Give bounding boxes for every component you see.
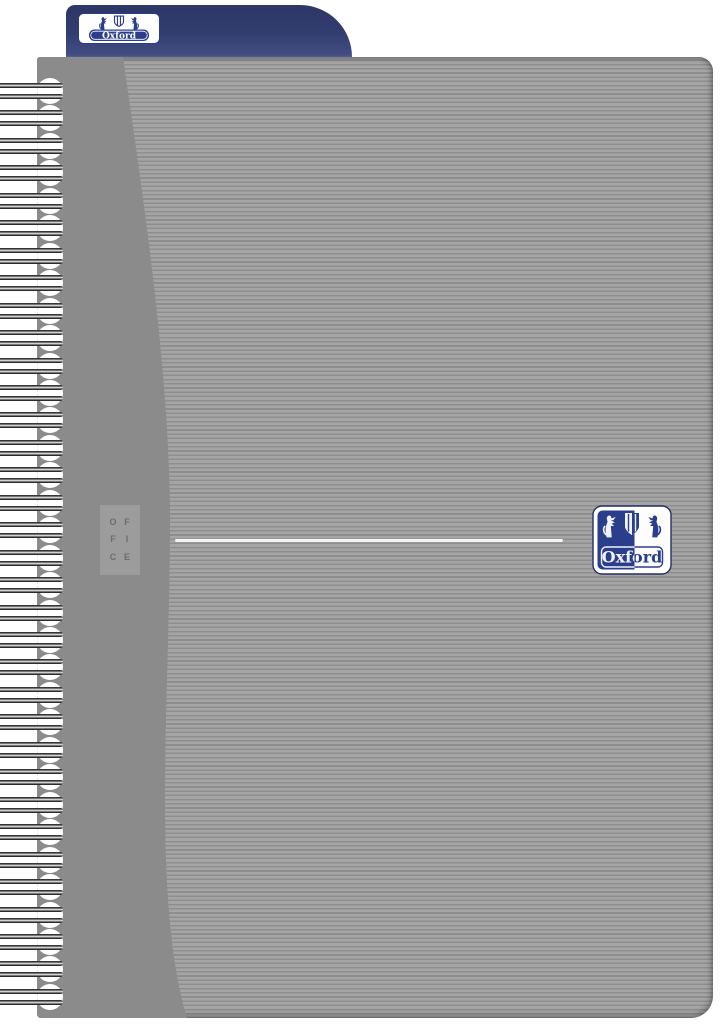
- oxford-logo-cover: Oxford Oxford: [592, 505, 672, 575]
- binding-hole: [37, 682, 63, 708]
- binding-hole: [37, 929, 63, 955]
- binding-hole: [37, 764, 63, 790]
- spiral-ring: [0, 654, 64, 680]
- wire-segment: [0, 808, 63, 813]
- binding-hole: [37, 490, 63, 516]
- spiral-ring: [0, 298, 64, 324]
- binding-hole: [37, 243, 63, 269]
- notebook-product-photo: Oxford O F F I C E: [0, 0, 721, 1024]
- wire-segment: [0, 83, 63, 88]
- spiral-ring: [0, 764, 64, 790]
- wire-segment: [0, 248, 63, 253]
- spiral-ring: [0, 407, 64, 433]
- spiral-ring: [0, 490, 64, 516]
- spiral-ring: [0, 792, 64, 818]
- binding-hole: [37, 654, 63, 680]
- spiral-ring: [0, 627, 64, 653]
- wire-segment: [0, 149, 63, 154]
- binding-hole: [37, 325, 63, 351]
- office-letter: O: [109, 518, 116, 527]
- wire-segment: [0, 275, 63, 280]
- wire-segment: [0, 725, 63, 730]
- wire-segment: [0, 989, 63, 994]
- wire-segment: [0, 742, 63, 747]
- wire-segment: [0, 396, 63, 401]
- spiral-ring: [0, 160, 64, 186]
- spiral-ring: [0, 215, 64, 241]
- wire-segment: [0, 879, 63, 884]
- wire-segment: [0, 550, 63, 555]
- wire-segment: [0, 478, 63, 483]
- wire-segment: [0, 934, 63, 939]
- binding-hole: [37, 545, 63, 571]
- wire-segment: [0, 522, 63, 527]
- notebook-cover: O F F I C E: [37, 57, 713, 1018]
- binding-hole: [37, 298, 63, 324]
- binding-hole: [37, 792, 63, 818]
- wire-segment: [0, 643, 63, 648]
- spiral-ring: [0, 435, 64, 461]
- binding-hole: [37, 105, 63, 131]
- wire-segment: [0, 852, 63, 857]
- binding-hole: [37, 984, 63, 1010]
- binding-hole: [37, 270, 63, 296]
- wire-segment: [0, 314, 63, 319]
- wire-segment: [0, 121, 63, 126]
- binding-hole: [37, 435, 63, 461]
- spiral-ring: [0, 462, 64, 488]
- spiral-binding: [0, 0, 80, 1024]
- wire-segment: [0, 193, 63, 198]
- wire-segment: [0, 176, 63, 181]
- spiral-ring: [0, 929, 64, 955]
- binding-hole: [37, 902, 63, 928]
- wire-segment: [0, 94, 63, 99]
- spiral-ring: [0, 572, 64, 598]
- wire-segment: [0, 259, 63, 264]
- wire-segment: [0, 506, 63, 511]
- wire-segment: [0, 423, 63, 428]
- wire-segment: [0, 918, 63, 923]
- spiral-ring: [0, 270, 64, 296]
- oxford-wordmark: Oxford: [102, 32, 137, 42]
- wire-segment: [0, 835, 63, 840]
- wire-segment: [0, 769, 63, 774]
- binding-hole: [37, 407, 63, 433]
- spiral-ring: [0, 380, 64, 406]
- binding-hole: [37, 847, 63, 873]
- wire-segment: [0, 165, 63, 170]
- wire-segment: [0, 588, 63, 593]
- wire-segment: [0, 577, 63, 582]
- index-tab: Oxford: [66, 5, 352, 57]
- wire-segment: [0, 303, 63, 308]
- wire-segment: [0, 110, 63, 115]
- spiral-ring: [0, 709, 64, 735]
- binding-hole: [37, 215, 63, 241]
- wire-segment: [0, 330, 63, 335]
- office-label: O F F I C E: [100, 505, 140, 575]
- wire-segment: [0, 687, 63, 692]
- wire-segment: [0, 495, 63, 500]
- spiral-ring: [0, 545, 64, 571]
- wire-segment: [0, 780, 63, 785]
- wire-segment: [0, 616, 63, 621]
- wire-segment: [0, 358, 63, 363]
- wire-segment: [0, 412, 63, 417]
- binding-hole: [37, 737, 63, 763]
- oxford-logo-tab: Oxford: [78, 13, 160, 44]
- wire-segment: [0, 286, 63, 291]
- binding-hole: [37, 709, 63, 735]
- binding-hole: [37, 462, 63, 488]
- binding-hole: [37, 627, 63, 653]
- wire-segment: [0, 220, 63, 225]
- binding-hole: [37, 956, 63, 982]
- wire-segment: [0, 714, 63, 719]
- wire-segment: [0, 341, 63, 346]
- binding-hole: [37, 874, 63, 900]
- wire-segment: [0, 138, 63, 143]
- binding-hole: [37, 160, 63, 186]
- spiral-ring: [0, 956, 64, 982]
- spiral-ring: [0, 325, 64, 351]
- binding-hole: [37, 600, 63, 626]
- wire-segment: [0, 369, 63, 374]
- spiral-ring: [0, 819, 64, 845]
- binding-hole: [37, 188, 63, 214]
- spiral-ring: [0, 78, 64, 104]
- spiral-ring: [0, 105, 64, 131]
- wire-segment: [0, 890, 63, 895]
- wire-segment: [0, 467, 63, 472]
- spiral-ring: [0, 133, 64, 159]
- spiral-ring: [0, 737, 64, 763]
- binding-hole: [37, 517, 63, 543]
- binding-hole: [37, 353, 63, 379]
- spiral-ring: [0, 847, 64, 873]
- office-letter: I: [126, 535, 129, 544]
- wire-segment: [0, 533, 63, 538]
- binding-hole: [37, 572, 63, 598]
- binding-hole: [37, 78, 63, 104]
- wire-segment: [0, 972, 63, 977]
- spiral-ring: [0, 874, 64, 900]
- wire-segment: [0, 753, 63, 758]
- wire-segment: [0, 1000, 63, 1005]
- office-letter: F: [110, 535, 116, 544]
- wire-segment: [0, 204, 63, 209]
- spiral-ring: [0, 353, 64, 379]
- spiral-ring: [0, 243, 64, 269]
- spiral-ring: [0, 984, 64, 1010]
- wire-segment: [0, 945, 63, 950]
- wire-segment: [0, 659, 63, 664]
- binding-hole: [37, 380, 63, 406]
- wire-segment: [0, 824, 63, 829]
- wire-segment: [0, 440, 63, 445]
- wire-segment: [0, 670, 63, 675]
- wire-segment: [0, 863, 63, 868]
- binding-hole: [37, 819, 63, 845]
- wire-segment: [0, 961, 63, 966]
- binding-hole: [37, 133, 63, 159]
- wire-segment: [0, 797, 63, 802]
- wire-segment: [0, 907, 63, 912]
- divider-line: [175, 539, 563, 542]
- office-letter: C: [110, 553, 117, 562]
- wire-segment: [0, 231, 63, 236]
- wire-segment: [0, 561, 63, 566]
- spiral-ring: [0, 902, 64, 928]
- spiral-ring: [0, 682, 64, 708]
- office-letter: F: [124, 518, 130, 527]
- wire-segment: [0, 451, 63, 456]
- wire-segment: [0, 698, 63, 703]
- office-letter: E: [124, 553, 130, 562]
- spiral-ring: [0, 517, 64, 543]
- spiral-ring: [0, 188, 64, 214]
- spiral-ring: [0, 600, 64, 626]
- wire-segment: [0, 632, 63, 637]
- wire-segment: [0, 605, 63, 610]
- wire-segment: [0, 385, 63, 390]
